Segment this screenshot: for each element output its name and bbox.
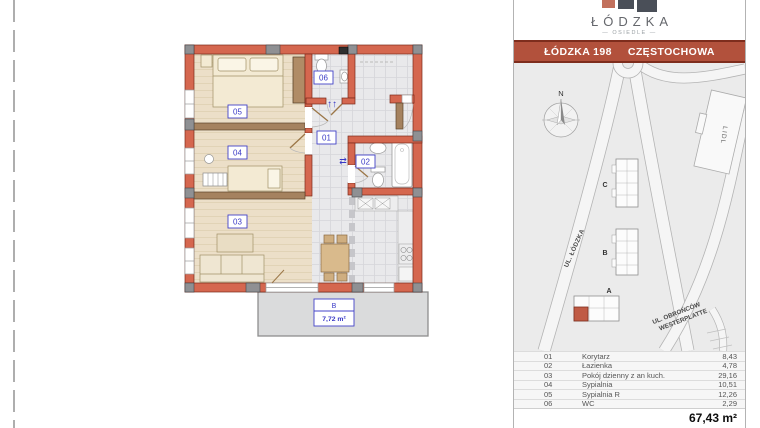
table-row: 06 WC 2,29 (514, 399, 745, 409)
logo-squares-icon (514, 0, 745, 13)
room-label-03: 03 (233, 218, 242, 227)
wardrobe (293, 57, 305, 103)
room-label-05: 05 (233, 108, 242, 117)
door-swap-arrows: ⇄ (339, 156, 347, 166)
table-row: 04 Sypialnia 10,51 (514, 380, 745, 390)
utility-box (339, 47, 348, 54)
bathtub (392, 141, 412, 187)
balcony-area: 7,72 m² (322, 316, 346, 323)
room-label-01: 01 (322, 134, 331, 143)
logo-title: ŁÓDZKA (514, 14, 745, 29)
floorplan-page: 05 04 03 01 02 06 ↑↑ ⇄ B 7,72 m² ŁÓDZKA (0, 0, 760, 428)
balcony-label: B 7,72 m² (314, 299, 354, 326)
rooms-area-table: 01 Korytarz 8,43 02 Łazienka 4,78 03 Pok… (514, 351, 745, 425)
room-label-04: 04 (233, 149, 242, 158)
sheet-fold-line (13, 0, 15, 428)
table-row: 03 Pokój dzienny z an kuch. 29,16 (514, 370, 745, 380)
stool (205, 155, 214, 164)
building-c-label: C (602, 182, 607, 189)
entry-door-leaf (396, 103, 403, 129)
table-row: 05 Sypialnia R 12,26 (514, 389, 745, 399)
room-label-02: 02 (361, 158, 370, 167)
estate-logo: ŁÓDZKA — OSIEDLE — (514, 0, 745, 40)
wc-sink (340, 70, 349, 83)
site-map: LIDL C B (514, 63, 745, 351)
bed-single (228, 166, 282, 191)
coffee-table (217, 234, 253, 252)
table-row: 02 Łazienka 4,78 (514, 361, 745, 371)
info-sidebar: ŁÓDZKA — OSIEDLE — ŁÓDZKA 198 CZĘSTOCHOW… (513, 0, 746, 428)
compass-north-label: N (558, 89, 563, 98)
unit-highlight[interactable] (574, 307, 588, 321)
project-banner: ŁÓDZKA 198 CZĘSTOCHOWA (514, 40, 745, 63)
room-label-06: 06 (319, 74, 328, 83)
building-a-label: A (606, 288, 611, 295)
wood-floor-extension (306, 196, 312, 283)
bed-double (213, 55, 283, 107)
bath-toilet (371, 167, 385, 187)
apartment-floorplan: 05 04 03 01 02 06 ↑↑ ⇄ B 7,72 m² (180, 40, 440, 346)
sofa (200, 255, 264, 282)
balcony-code: B (332, 303, 337, 310)
banner-project: ŁÓDZKA 198 (544, 46, 612, 58)
building-b-label: B (602, 250, 607, 257)
total-area: 67,43 m² (514, 408, 745, 425)
banner-city: CZĘSTOCHOWA (628, 46, 715, 58)
logo-subtitle: — OSIEDLE — (514, 30, 745, 36)
nightstand (201, 55, 212, 67)
table-row: 01 Korytarz 8,43 (514, 351, 745, 361)
entry-arrows: ↑↑ (327, 99, 337, 110)
radiator (203, 173, 227, 186)
